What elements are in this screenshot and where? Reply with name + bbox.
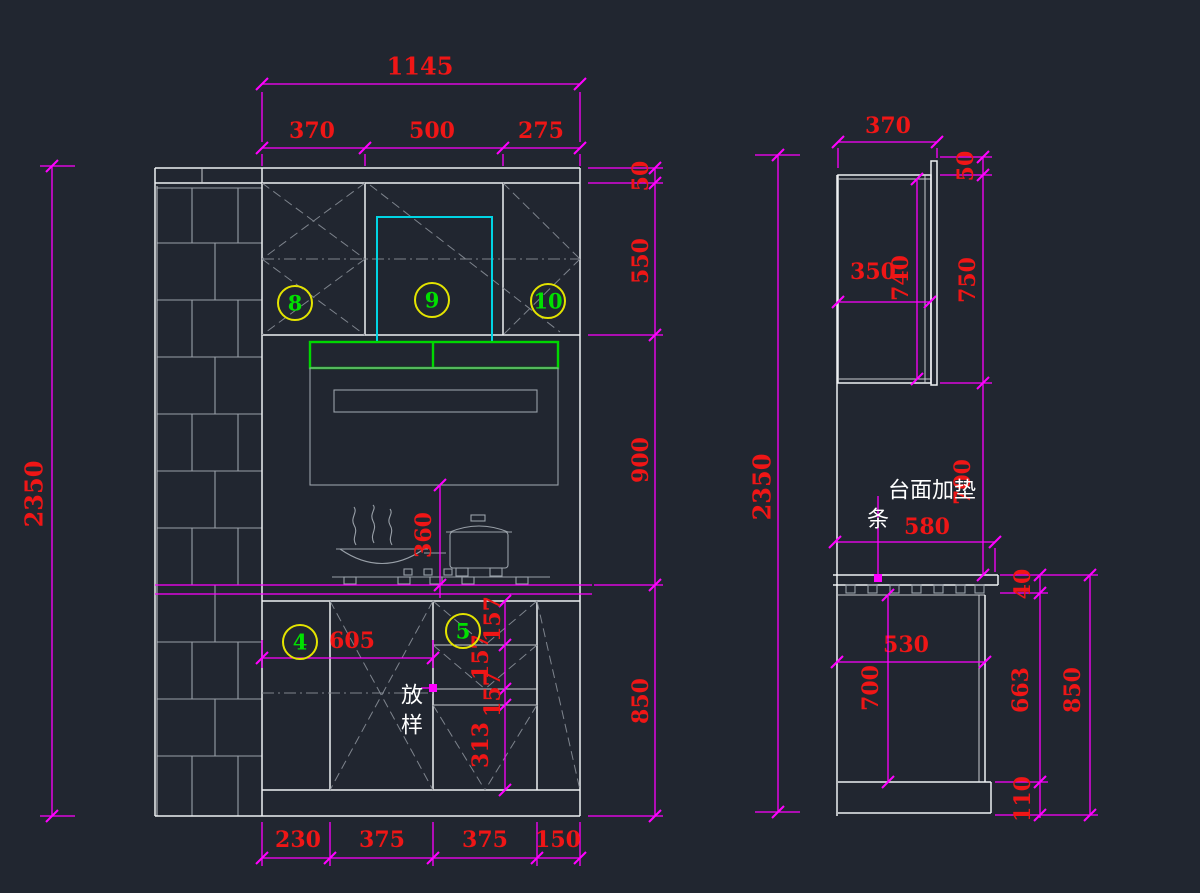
dim-total-height-side: 2350: [748, 149, 801, 818]
layout-note: 放 样: [401, 684, 437, 739]
dim-label-900: 900: [628, 437, 654, 483]
dim-label-1145: 1145: [387, 52, 454, 81]
dim-label-313: 313: [468, 722, 494, 768]
side-elevation: 370 50 750 700 740 350: [748, 113, 1099, 822]
dim-label-700-lower: 700: [858, 665, 884, 711]
dim-drawers: 157 157 157 313: [468, 595, 511, 796]
dim-base-total: 850: [1060, 569, 1096, 821]
dim-bottom-widths: 230 375 375 150: [256, 822, 586, 866]
dimensions-front: 1145 370 500 275: [20, 52, 664, 867]
callout-9-number: 9: [425, 288, 440, 313]
dim-label-550: 550: [628, 238, 654, 284]
dim-label-350: 350: [850, 259, 896, 285]
pad-note-line1: 台面加垫: [888, 479, 976, 504]
dim-hood-gap: 360: [411, 479, 446, 598]
callout-5-number: 5: [456, 619, 471, 644]
dim-label-850-side: 850: [1060, 667, 1086, 713]
dim-base-depth: 530: [831, 632, 991, 668]
dim-label-50-side: 50: [953, 151, 979, 182]
layout-note-char1: 放: [401, 684, 423, 709]
dim-label-663: 663: [1008, 667, 1034, 713]
counter-pad-strips: [846, 585, 984, 593]
callout-10-number: 10: [533, 289, 562, 314]
cabinet-structure: [155, 168, 580, 816]
dim-label-110: 110: [1010, 776, 1036, 822]
dimensions-side: 370 50 750 700 740 350: [748, 113, 1099, 822]
callout-10: 10: [531, 284, 565, 318]
dim-label-2350-front: 2350: [20, 461, 49, 528]
dim-label-370: 370: [289, 118, 335, 144]
dim-label-370-side: 370: [865, 113, 911, 139]
dim-label-40: 40: [1010, 569, 1036, 600]
callout-4-number: 4: [293, 630, 308, 655]
dim-inner-depth: 350: [832, 259, 936, 308]
dim-label-157c: 157: [480, 671, 506, 717]
pad-note-line2: 条: [867, 508, 889, 533]
dim-label-605: 605: [329, 628, 375, 654]
dim-label-360: 360: [411, 512, 437, 558]
kitchen-elevation-drawing: 1145 370 500 275: [0, 0, 1200, 893]
dim-depth-top: 370: [832, 113, 943, 168]
callout-5: 5: [446, 614, 480, 648]
callout-8: 8: [278, 286, 312, 320]
dim-total-height-front: 2350: [20, 160, 76, 822]
hood-duct-outline: [377, 217, 492, 342]
dim-label-230: 230: [275, 827, 321, 853]
range-hood: [310, 342, 558, 485]
dim-label-375b: 375: [462, 827, 508, 853]
cooktop: [332, 505, 550, 584]
callout-9: 9: [415, 283, 449, 317]
dim-base-height: 700: [858, 589, 894, 788]
dim-label-500: 500: [409, 118, 455, 144]
dim-label-530: 530: [883, 632, 929, 658]
dim-label-750: 750: [955, 257, 981, 303]
tiled-wall: [157, 188, 262, 816]
cad-canvas: 1145 370 500 275: [0, 0, 1200, 893]
dim-counter-depth: 580: [829, 514, 1001, 572]
callouts: 8 9 10 4 5: [278, 283, 565, 659]
front-elevation: 1145 370 500 275: [20, 52, 664, 867]
dim-label-50: 50: [628, 161, 654, 192]
callout-4: 4: [283, 625, 317, 659]
dim-label-850: 850: [628, 678, 654, 724]
dim-upper-widths: 370 500 275: [256, 118, 586, 166]
dim-label-2350-side: 2350: [748, 454, 777, 521]
dim-label-580: 580: [904, 514, 950, 540]
dim-label-150: 150: [535, 827, 581, 853]
dim-height-chain: 50 550 900 850: [588, 161, 663, 822]
dim-label-375a: 375: [359, 827, 405, 853]
layout-note-char2: 样: [401, 714, 423, 739]
dim-label-275: 275: [518, 118, 564, 144]
pot-icon: [446, 515, 512, 576]
countertop-lines: [155, 585, 592, 594]
callout-8-number: 8: [288, 291, 303, 316]
